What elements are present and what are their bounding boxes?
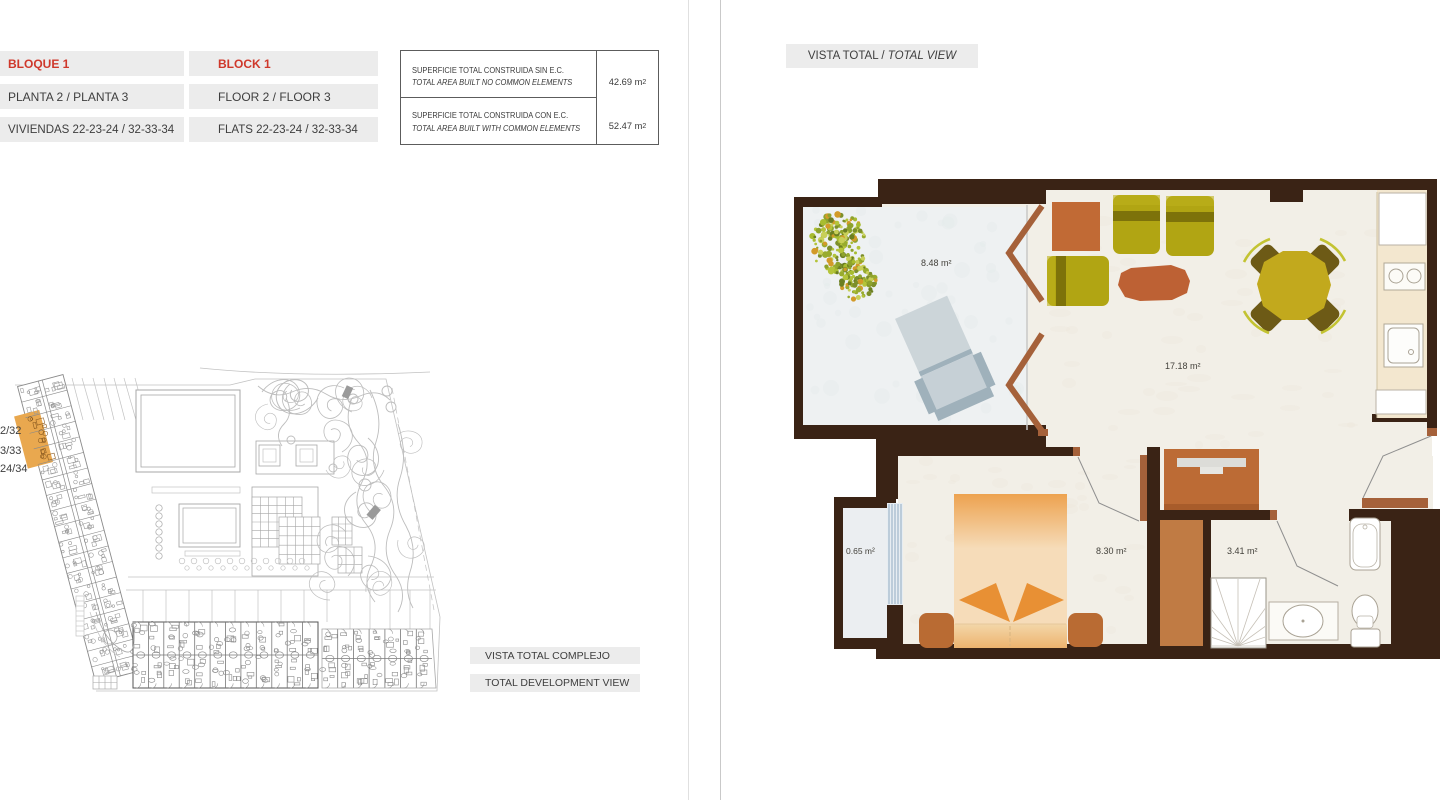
- svg-text:3.41 m²: 3.41 m²: [1227, 546, 1258, 556]
- svg-text:17.18 m²: 17.18 m²: [1165, 361, 1201, 371]
- svg-text:8.48 m²: 8.48 m²: [921, 258, 952, 268]
- svg-text:0.65 m²: 0.65 m²: [846, 546, 875, 556]
- svg-text:8.30 m²: 8.30 m²: [1096, 546, 1127, 556]
